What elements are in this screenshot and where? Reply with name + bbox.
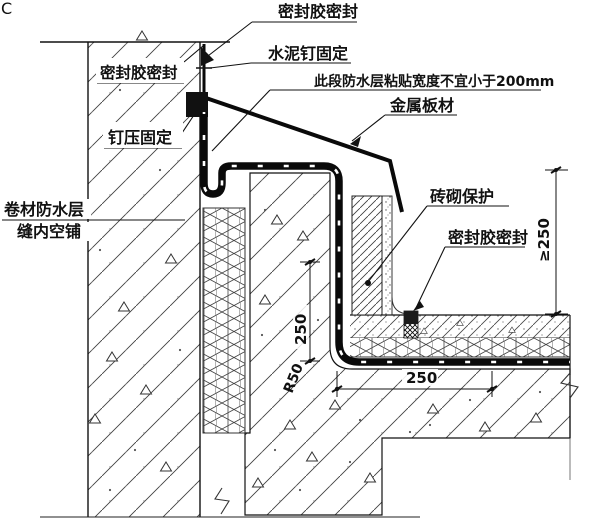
parapet-wall: [88, 42, 200, 517]
callout-nail-fix: 钉压固定: [103, 122, 183, 148]
sealant-block: [404, 311, 418, 338]
seam-break-mark: [215, 488, 229, 514]
svg-text:250: 250: [406, 369, 437, 387]
drawing-canvas: C: [0, 0, 600, 532]
mortar-render-strip: [382, 196, 392, 315]
svg-text:250: 250: [292, 314, 310, 345]
dim-height-min: ≥250: [535, 167, 568, 317]
callout-metal-sheet: 金属板材: [389, 96, 454, 115]
callout-seal-right: 密封胶密封: [447, 228, 528, 247]
svg-text:≥250: ≥250: [535, 218, 553, 262]
callout-membrane-line1: 卷材防水层: [3, 200, 84, 219]
construction-detail-drawing: C: [0, 0, 600, 532]
brick-protection-wall: [352, 196, 410, 315]
svg-text:钉压固定: 钉压固定: [108, 128, 172, 147]
callout-brick-protect: 砖砌保护: [430, 187, 494, 206]
callout-seal-left: 密封胶密封: [96, 58, 184, 83]
callout-seal-top: 密封胶密封: [277, 2, 358, 21]
roof-insulation-layer: [350, 338, 570, 357]
roof-screed-layer: [350, 315, 570, 338]
callout-bond-width-note: 此段防水层粘贴宽度不宜小于200mm: [314, 73, 554, 90]
callout-cement-nail: 水泥钉固定: [268, 44, 348, 63]
watermark-mark: C: [1, 0, 12, 18]
brick-leader-dot: [365, 280, 371, 286]
svg-text:密封胶密封: 密封胶密封: [100, 63, 178, 82]
callout-membrane-line2: 缝内空铺: [17, 222, 81, 241]
seam-insulation-column: [203, 208, 245, 433]
